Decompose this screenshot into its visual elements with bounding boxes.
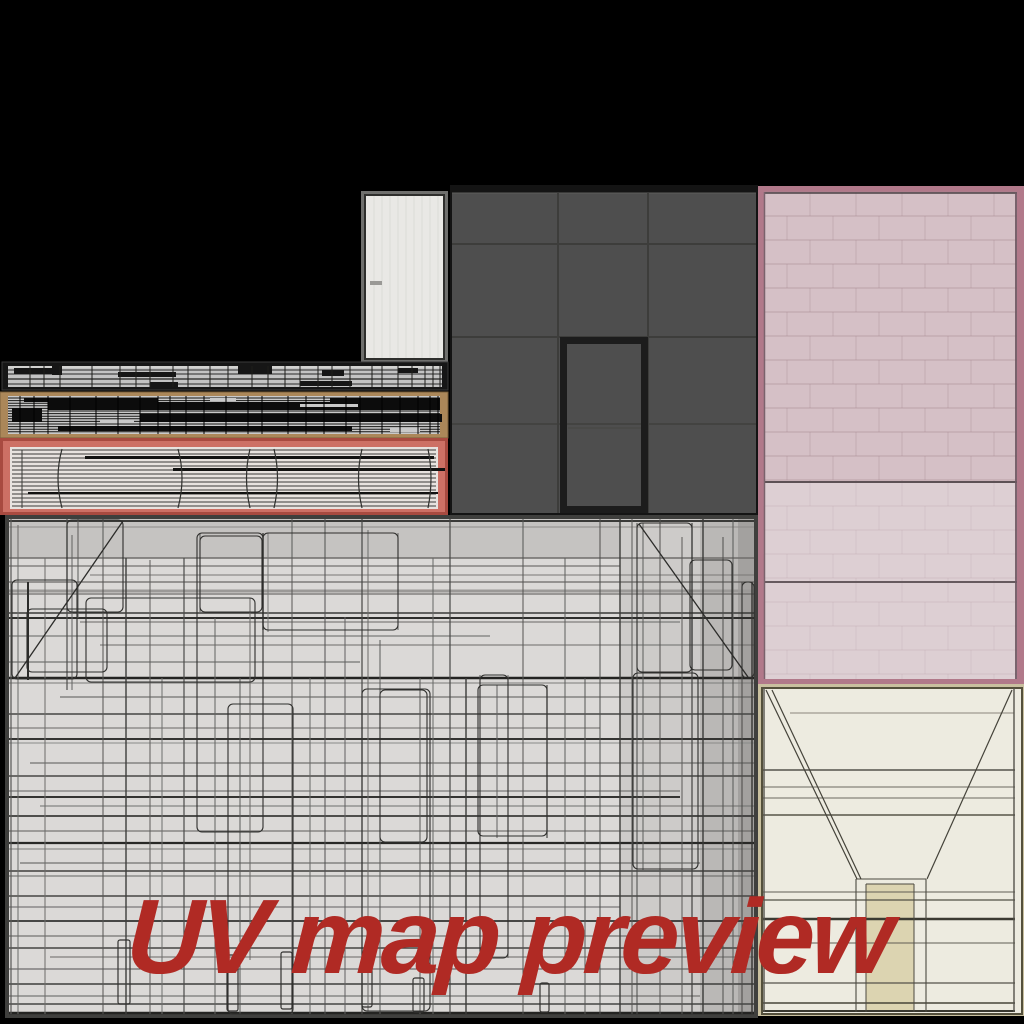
ceiling-strip-island (2, 362, 448, 390)
red-strip-island (0, 438, 448, 515)
pink-wall-island (758, 186, 1024, 686)
uv-islands-graphic (0, 0, 1024, 1024)
uv-map-preview-canvas: UV map preview (0, 0, 1024, 1024)
uv-map-caption: UV map preview (124, 884, 892, 990)
dark-wall-island (450, 185, 758, 515)
white-door-island (361, 191, 448, 363)
wood-strip-island (0, 392, 448, 438)
